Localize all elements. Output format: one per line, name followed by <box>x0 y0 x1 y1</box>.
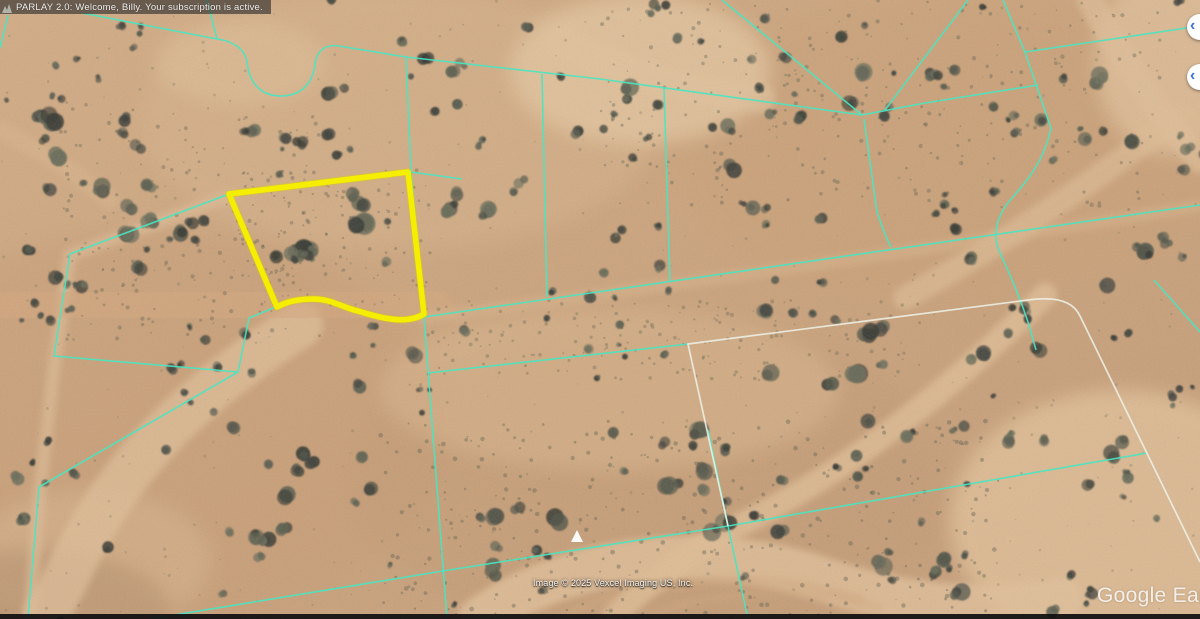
map-view: PARLAY 2.0: Welcome, Billy. Your subscri… <box>0 0 1200 619</box>
app-logo-icon <box>2 2 12 13</box>
chevron-left-icon: ‹ <box>1190 68 1195 84</box>
chevron-left-icon: ‹ <box>1190 18 1195 34</box>
app-status-bar: PARLAY 2.0: Welcome, Billy. Your subscri… <box>0 0 271 14</box>
imagery-attribution: Image © 2025 Vexcel Imaging US, Inc. <box>533 578 693 588</box>
terrain-layer <box>0 0 1200 619</box>
bottom-edge-strip <box>0 614 1200 619</box>
google-earth-watermark: Google Earth <box>1097 584 1200 608</box>
map-canvas[interactable] <box>0 0 1200 619</box>
welcome-status-text: PARLAY 2.0: Welcome, Billy. Your subscri… <box>16 2 263 13</box>
